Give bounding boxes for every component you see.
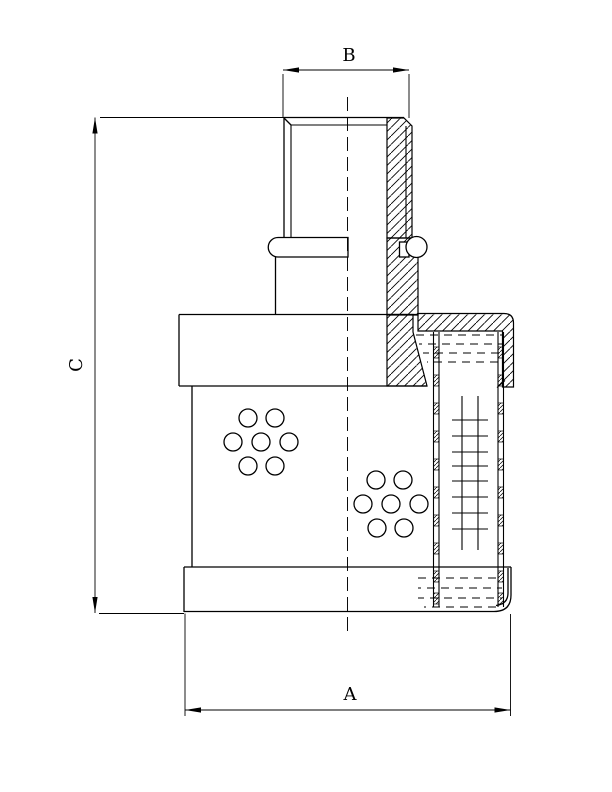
arrowhead-left <box>185 707 201 712</box>
arrowhead-bottom <box>92 597 97 613</box>
arrowhead-left <box>283 67 299 72</box>
section-hatch-neck-wall <box>387 118 418 315</box>
arrowhead-top <box>92 118 97 134</box>
dimension-label-a: A <box>343 684 358 705</box>
arrowhead-right <box>495 707 511 712</box>
dimension-label-c: C <box>66 358 87 372</box>
filter-mesh <box>452 396 488 550</box>
oring-right <box>406 237 427 258</box>
arrowhead-right <box>393 67 409 72</box>
oring-left <box>268 238 348 258</box>
liquid-level-bottom <box>418 578 502 607</box>
section-hatch-bowl-cap <box>387 314 514 388</box>
perforation-holes-right <box>354 471 428 537</box>
dimension-b: B <box>283 45 409 118</box>
filter-wall-left <box>434 332 440 607</box>
drawing-sheet: B C A <box>0 0 612 792</box>
dimension-c: C <box>66 118 284 614</box>
technical-drawing: B C A <box>0 0 612 792</box>
liquid-level-top <box>416 335 502 362</box>
dimension-label-b: B <box>342 45 355 66</box>
perforation-holes-left <box>224 409 298 475</box>
